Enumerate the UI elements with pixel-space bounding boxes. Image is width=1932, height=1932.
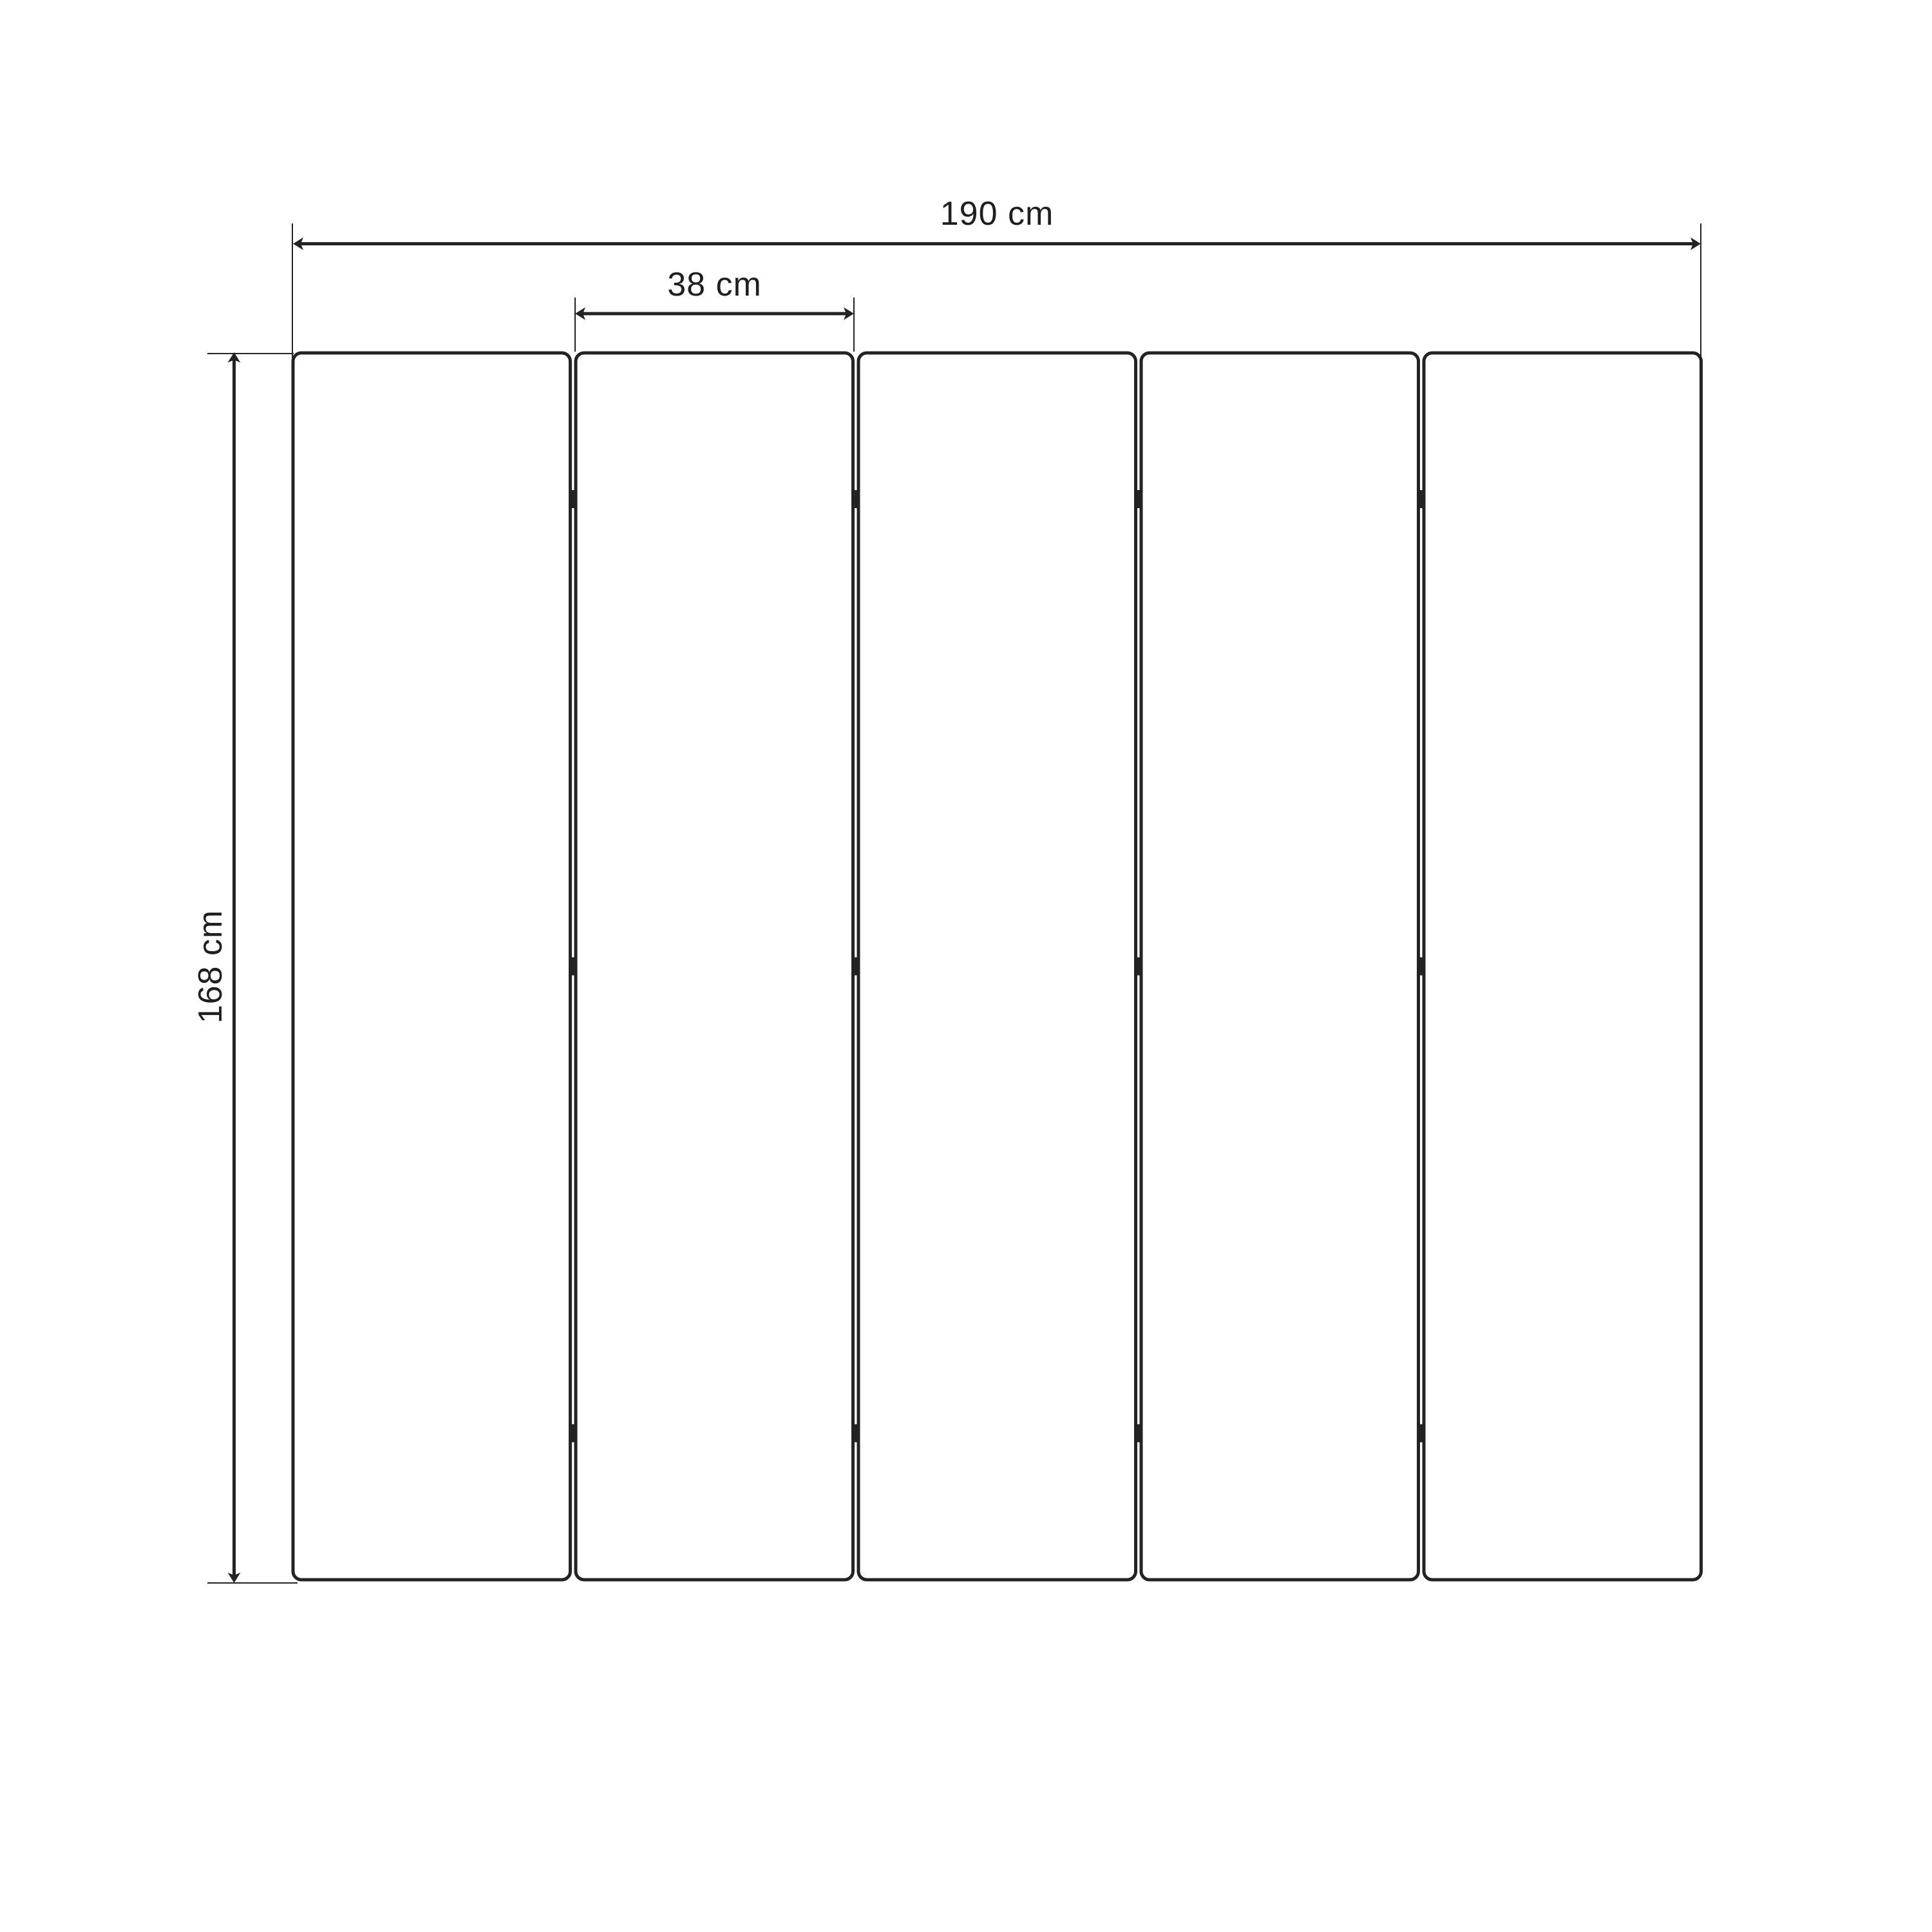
svg-text:38 cm: 38 cm [667,266,762,303]
svg-text:168 cm: 168 cm [192,910,229,1024]
svg-text:190 cm: 190 cm [940,195,1054,232]
